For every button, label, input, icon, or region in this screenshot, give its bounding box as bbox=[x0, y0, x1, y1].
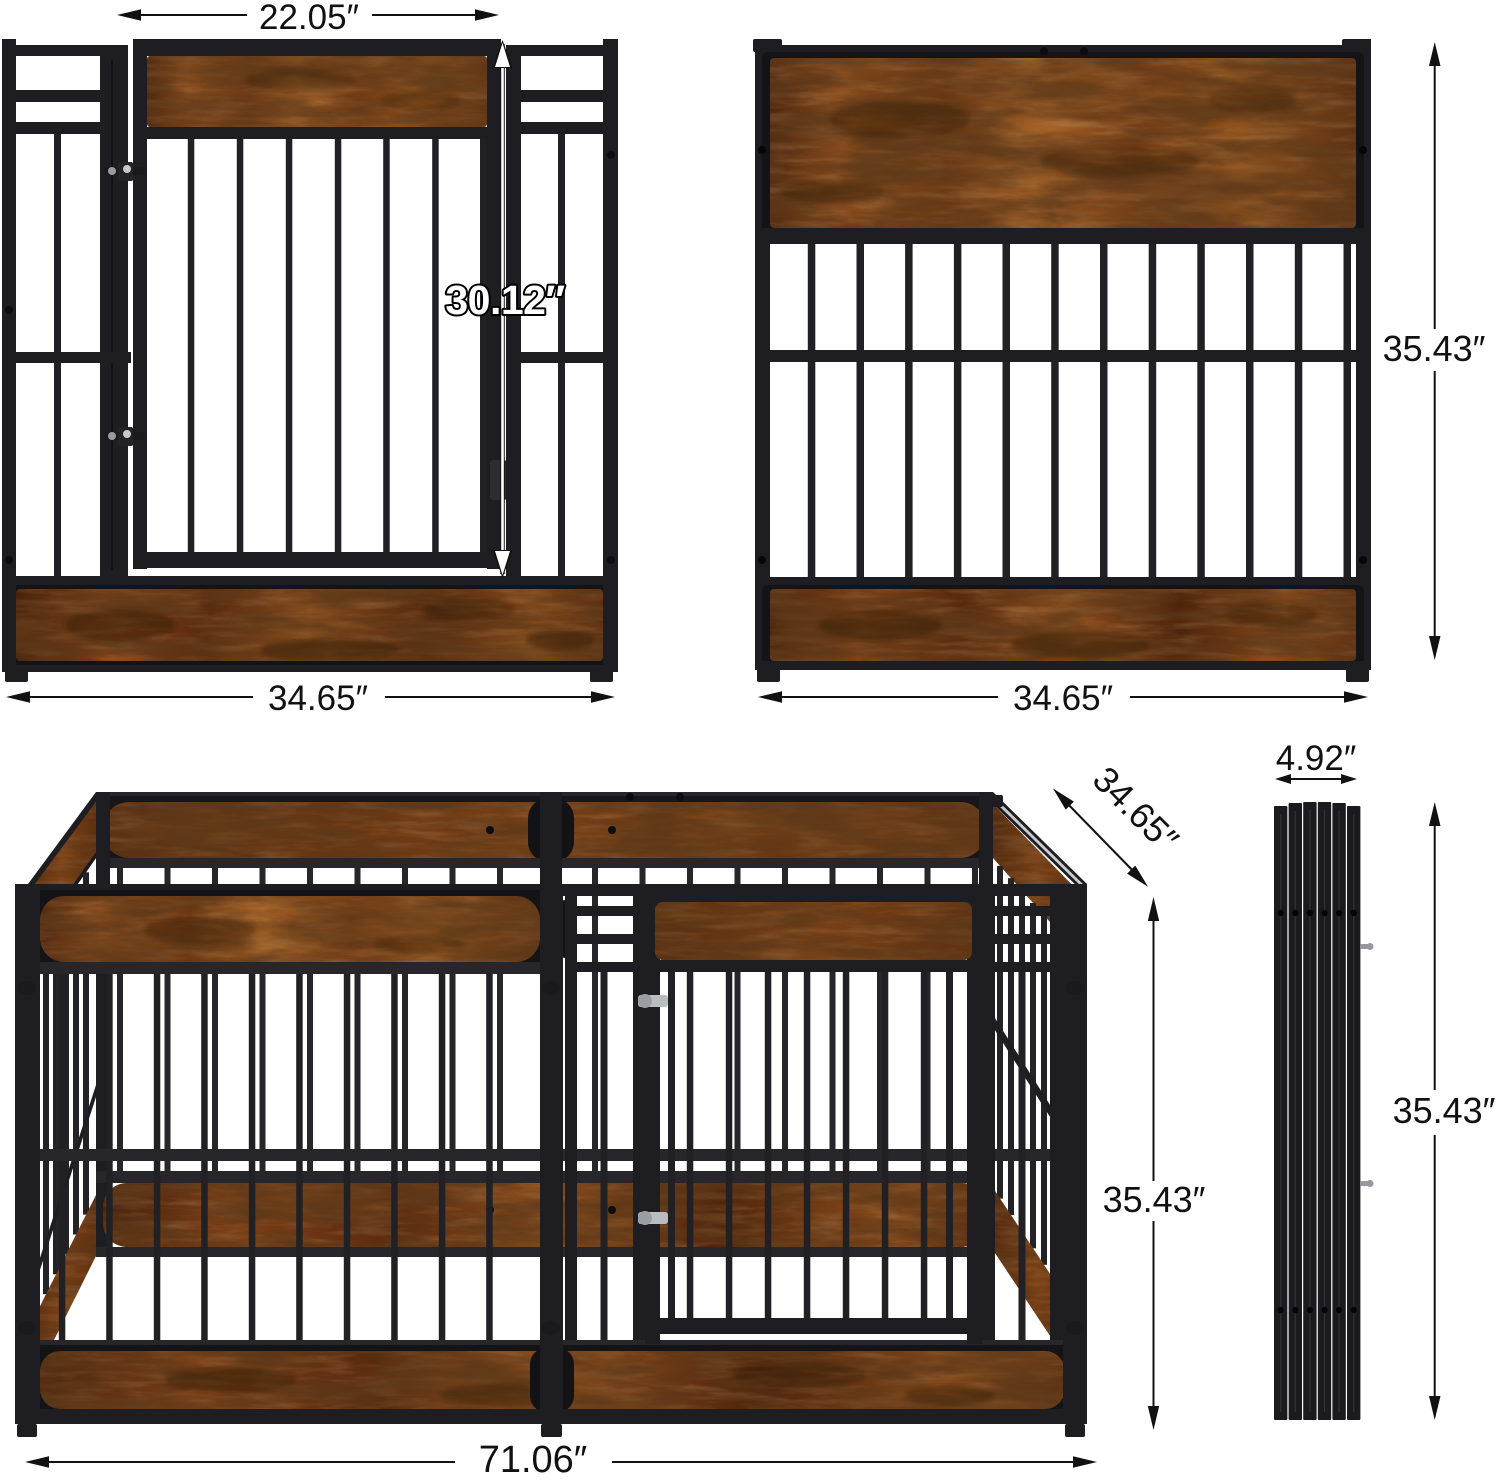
svg-text:71.06″: 71.06″ bbox=[479, 1439, 588, 1481]
svg-text:22.05″: 22.05″ bbox=[259, 0, 359, 37]
svg-text:34.65″: 34.65″ bbox=[268, 679, 368, 718]
svg-text:35.43″: 35.43″ bbox=[1393, 1090, 1496, 1131]
svg-text:35.43″: 35.43″ bbox=[1103, 1179, 1206, 1220]
svg-text:30.12″: 30.12″ bbox=[445, 277, 564, 323]
svg-text:35.43″: 35.43″ bbox=[1383, 328, 1486, 369]
svg-text:34.65″: 34.65″ bbox=[1013, 679, 1113, 718]
svg-text:4.92″: 4.92″ bbox=[1276, 739, 1357, 778]
